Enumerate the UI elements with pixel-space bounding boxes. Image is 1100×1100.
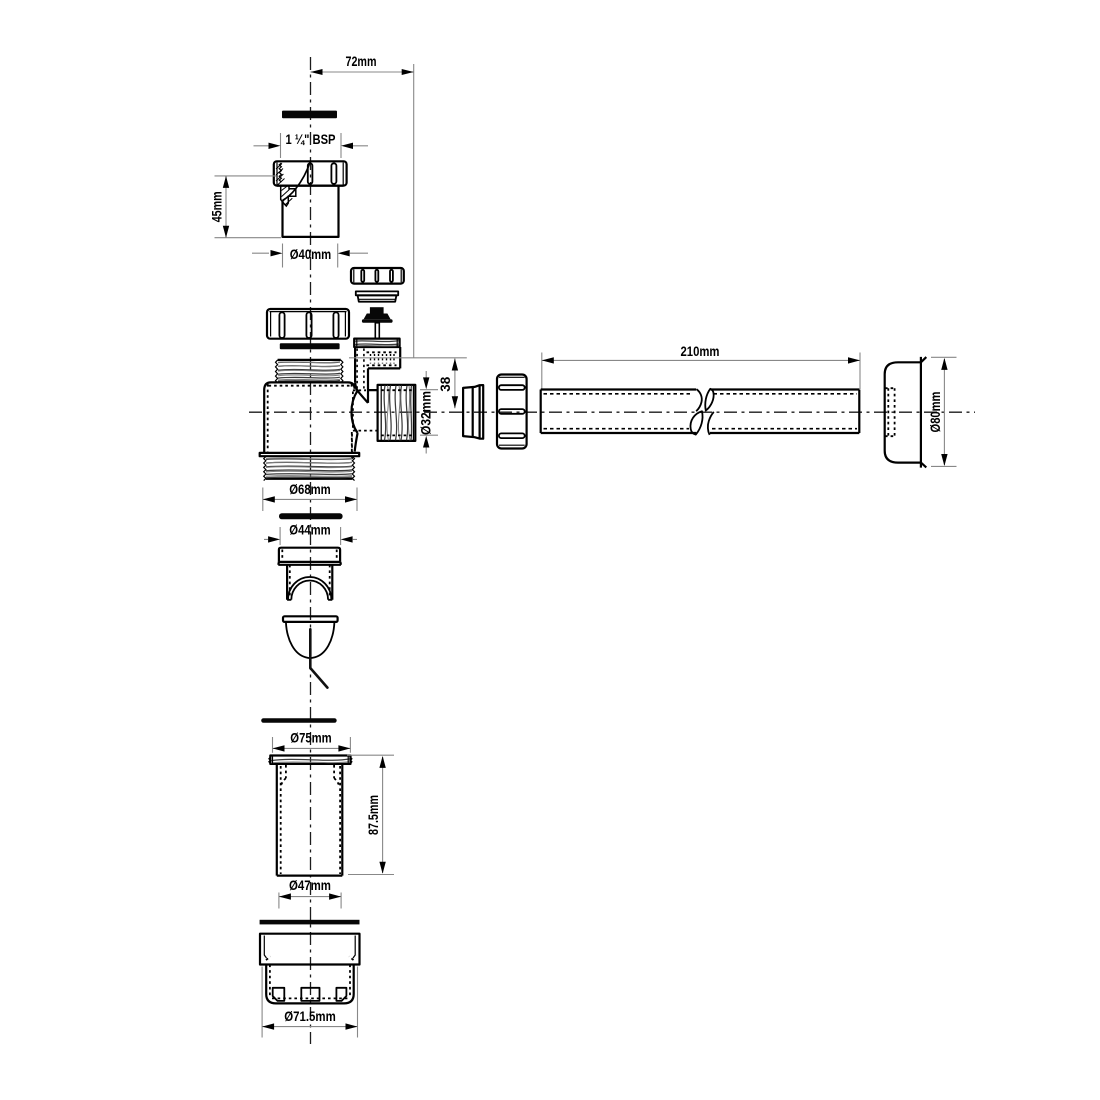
svg-text:Ø80mm: Ø80mm xyxy=(928,392,943,433)
svg-text:72mm: 72mm xyxy=(346,54,377,69)
svg-text:Ø44mm: Ø44mm xyxy=(289,523,330,538)
svg-text:Ø68mm: Ø68mm xyxy=(289,482,331,497)
svg-text:1 ¼" BSP: 1 ¼" BSP xyxy=(286,132,336,147)
svg-text:Ø71.5mm: Ø71.5mm xyxy=(284,1009,336,1024)
svg-text:45mm: 45mm xyxy=(210,191,225,222)
svg-text:87.5mm: 87.5mm xyxy=(366,795,381,835)
svg-text:Ø47mm: Ø47mm xyxy=(289,878,331,893)
svg-text:Ø32mm: Ø32mm xyxy=(419,391,434,435)
svg-text:Ø40mm: Ø40mm xyxy=(290,247,332,262)
svg-text:210mm: 210mm xyxy=(681,344,720,359)
svg-text:38: 38 xyxy=(438,376,453,391)
svg-text:Ø75mm: Ø75mm xyxy=(290,731,331,746)
